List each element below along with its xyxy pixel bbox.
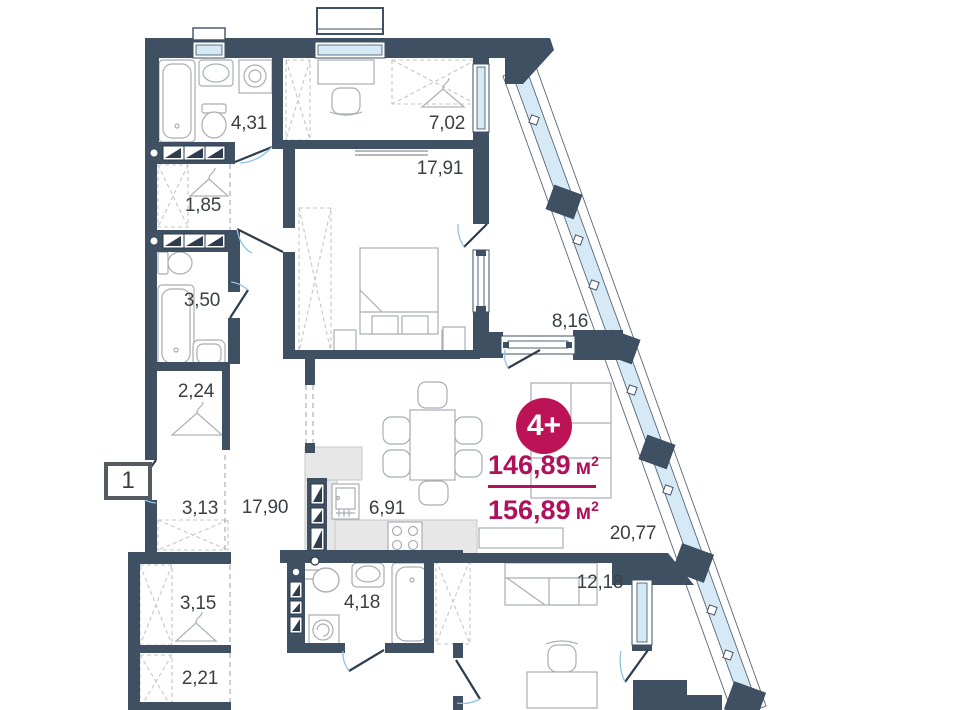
dining-chair xyxy=(383,417,410,444)
chair xyxy=(330,88,362,115)
room-area-label-balcony: 8,16 xyxy=(552,311,588,333)
room-area-label-hall: 3,13 xyxy=(182,498,218,520)
room-area-label-bedroom-top: 7,02 xyxy=(429,113,465,135)
hanger-icon xyxy=(176,612,216,641)
bed xyxy=(360,248,438,334)
wardrobe-hall xyxy=(158,520,228,550)
wardrobe-7-02-left xyxy=(286,60,310,140)
dining-chair xyxy=(455,417,482,444)
sliding-door xyxy=(355,151,428,155)
window-top-balcony xyxy=(315,8,385,58)
sink xyxy=(352,563,384,587)
toilet xyxy=(158,252,192,274)
bench xyxy=(479,528,563,548)
room-area-label-bedroom-master: 17,91 xyxy=(417,158,464,180)
walls xyxy=(128,38,766,710)
window-room-top-right xyxy=(473,64,489,132)
kitchen-sink xyxy=(332,484,359,519)
window-top-left xyxy=(193,28,225,58)
room-area-label-living-room: 20,77 xyxy=(610,523,657,545)
room-area-label-kitchen: 6,91 xyxy=(369,498,405,520)
total-area-line: 156,89м2 xyxy=(488,491,599,528)
hanger-icon xyxy=(422,78,464,107)
total-area-unit: м2 xyxy=(576,501,599,524)
desk xyxy=(527,672,597,708)
area-divider xyxy=(488,485,596,488)
dining-table xyxy=(410,410,455,480)
room-area-label-bathroom-bottom: 4,18 xyxy=(344,592,380,614)
wardrobe-3-15 xyxy=(140,565,172,645)
floor-plan: 4,31 7,02 17,91 1,85 3,50 2,24 8,16 3,13… xyxy=(0,0,960,710)
room-area-label-bathroom-top: 4,31 xyxy=(231,113,267,135)
room-area-label-bathroom-mid: 3,50 xyxy=(184,290,220,312)
toilet xyxy=(301,568,339,592)
floor-plan-drawing xyxy=(0,0,960,710)
dining-chair xyxy=(455,450,482,477)
sink xyxy=(199,60,233,86)
dining-chair xyxy=(383,450,410,477)
bathtub xyxy=(159,60,195,142)
wardrobe-master xyxy=(299,208,331,352)
washing-machine xyxy=(309,615,339,646)
dining-chair xyxy=(419,481,448,505)
living-area-unit: м2 xyxy=(576,456,599,479)
washing-machine xyxy=(239,60,272,93)
hanger-icon xyxy=(172,402,222,435)
room-area-label-wardrobe-3: 3,15 xyxy=(180,593,216,615)
wardrobe-12-18 xyxy=(436,560,470,644)
desk xyxy=(318,60,374,84)
dining-chair xyxy=(418,382,447,408)
room-area-label-wardrobe-1: 1,85 xyxy=(185,195,221,217)
cabinet xyxy=(443,327,465,353)
chair xyxy=(546,641,578,672)
living-area-line: 146,89м2 xyxy=(488,446,599,483)
window-master-right xyxy=(473,250,489,312)
stove xyxy=(388,522,422,553)
living-area-value: 146,89 xyxy=(488,450,571,480)
wardrobe-1-85 xyxy=(158,165,188,227)
room-area-label-wardrobe-2: 2,24 xyxy=(178,381,214,403)
total-area-value: 156,89 xyxy=(488,495,571,525)
nightstand xyxy=(334,330,356,352)
toilet xyxy=(202,104,226,138)
hanger-icon xyxy=(190,168,228,196)
room-area-label-corridor: 17,90 xyxy=(242,497,289,519)
area-summary: 146,89м2 156,89м2 xyxy=(488,446,599,528)
entry-number-badge: 1 xyxy=(104,462,152,500)
wardrobe-2-21 xyxy=(140,655,172,708)
room-area-label-wardrobe-4: 2,21 xyxy=(182,668,218,690)
window-room-bottom-right xyxy=(632,580,652,645)
room-area-label-bedroom-bottom: 12,18 xyxy=(577,572,624,594)
